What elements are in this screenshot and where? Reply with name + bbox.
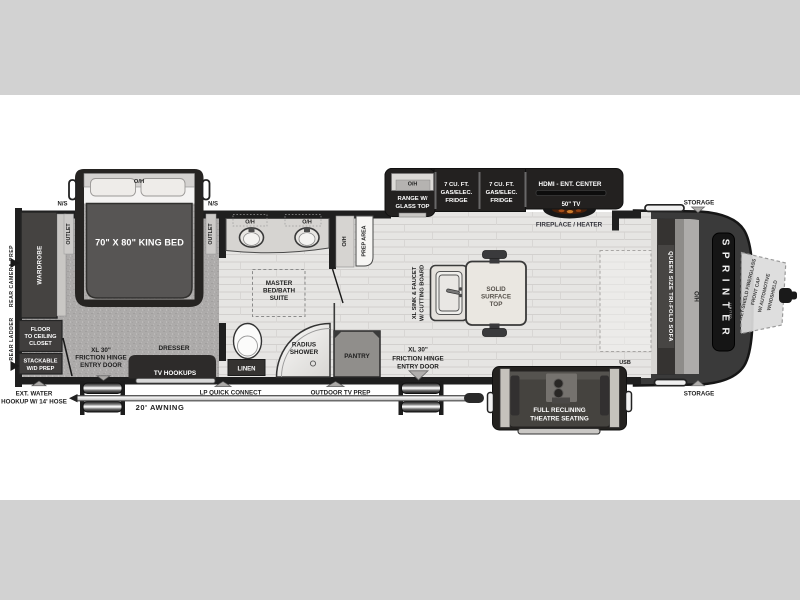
svg-text:LIMITED: LIMITED xyxy=(729,303,733,319)
svg-text:MASTER: MASTER xyxy=(266,280,293,287)
svg-text:USB: USB xyxy=(619,360,631,366)
svg-text:SPRINTER: SPRINTER xyxy=(720,239,731,342)
svg-text:N/S: N/S xyxy=(208,202,218,208)
svg-text:TO CEILING: TO CEILING xyxy=(25,334,57,340)
svg-text:O/H: O/H xyxy=(342,236,348,246)
svg-text:W/ CUTTING BOARD: W/ CUTTING BOARD xyxy=(420,265,426,321)
svg-text:XL SINK & FAUCET: XL SINK & FAUCET xyxy=(412,266,418,319)
svg-text:TOP: TOP xyxy=(490,301,503,308)
svg-text:GAS/ELEC.: GAS/ELEC. xyxy=(441,190,473,196)
svg-text:TV HOOKUPS: TV HOOKUPS xyxy=(154,370,197,377)
svg-text:7 CU. FT.: 7 CU. FT. xyxy=(444,182,469,188)
svg-text:FLOOR: FLOOR xyxy=(31,327,51,333)
svg-text:O/H: O/H xyxy=(693,291,699,302)
svg-text:SUITE: SUITE xyxy=(270,295,289,302)
svg-text:PANTRY: PANTRY xyxy=(344,353,370,360)
svg-text:QUEEN SIZE TRI-FOLD SOFA: QUEEN SIZE TRI-FOLD SOFA xyxy=(667,251,673,342)
svg-text:BED/BATH: BED/BATH xyxy=(263,288,296,295)
svg-text:O/H: O/H xyxy=(302,220,312,226)
svg-text:HDMI - ENT. CENTER: HDMI - ENT. CENTER xyxy=(539,181,602,188)
svg-text:FRICTION HINGE: FRICTION HINGE xyxy=(75,355,126,362)
svg-text:SURFACE: SURFACE xyxy=(481,294,511,301)
svg-text:FIREPLACE / HEATER: FIREPLACE / HEATER xyxy=(536,222,603,229)
svg-text:RANGE W/: RANGE W/ xyxy=(397,196,427,202)
svg-text:SHOWER: SHOWER xyxy=(290,349,319,356)
svg-text:FRIDGE: FRIDGE xyxy=(445,198,467,204)
svg-text:HOOKUP W/ 14' HOSE: HOOKUP W/ 14' HOSE xyxy=(1,399,67,406)
svg-text:REAR LADDER: REAR LADDER xyxy=(9,317,15,360)
svg-text:FRICTION HINGE: FRICTION HINGE xyxy=(392,356,443,363)
svg-text:O/H: O/H xyxy=(408,182,418,188)
svg-text:DRESSER: DRESSER xyxy=(159,345,190,352)
svg-text:O/H: O/H xyxy=(245,220,255,226)
svg-text:N/S: N/S xyxy=(57,202,67,208)
svg-text:LINEN: LINEN xyxy=(238,367,256,373)
svg-text:STORAGE: STORAGE xyxy=(684,390,714,397)
svg-text:GLASS TOP: GLASS TOP xyxy=(396,204,430,210)
svg-text:ENTRY DOOR: ENTRY DOOR xyxy=(397,364,439,371)
svg-text:CLOSET: CLOSET xyxy=(29,341,52,347)
svg-text:20' AWNING: 20' AWNING xyxy=(136,403,185,412)
svg-text:70" X 80" KING BED: 70" X 80" KING BED xyxy=(95,238,184,248)
svg-text:PREP AREA: PREP AREA xyxy=(362,225,368,256)
svg-text:ENTRY DOOR: ENTRY DOOR xyxy=(80,362,122,369)
svg-text:O/H: O/H xyxy=(134,179,144,185)
svg-text:W/D PREP: W/D PREP xyxy=(27,366,55,372)
svg-text:SOLID: SOLID xyxy=(486,286,506,293)
svg-text:OUTLET: OUTLET xyxy=(66,223,72,245)
svg-text:FRIDGE: FRIDGE xyxy=(490,198,512,204)
svg-text:WARDROBE: WARDROBE xyxy=(37,245,44,284)
svg-text:GAS/ELEC.: GAS/ELEC. xyxy=(486,190,518,196)
svg-text:7 CU. FT.: 7 CU. FT. xyxy=(489,182,514,188)
svg-text:XL 30": XL 30" xyxy=(408,347,428,354)
svg-text:RADIUS: RADIUS xyxy=(292,342,316,349)
svg-text:OUTLET: OUTLET xyxy=(208,223,214,245)
svg-text:XL 30": XL 30" xyxy=(91,347,111,354)
svg-text:THEATRE SEATING: THEATRE SEATING xyxy=(530,416,589,423)
svg-text:FULL RECLINING: FULL RECLINING xyxy=(533,407,585,414)
svg-text:STACKABLE: STACKABLE xyxy=(23,359,57,365)
svg-text:50" TV: 50" TV xyxy=(562,202,581,208)
svg-text:STORAGE: STORAGE xyxy=(684,199,714,206)
svg-text:EXT. WATER: EXT. WATER xyxy=(16,391,53,398)
svg-text:REAR CAMERA PREP: REAR CAMERA PREP xyxy=(9,245,15,307)
